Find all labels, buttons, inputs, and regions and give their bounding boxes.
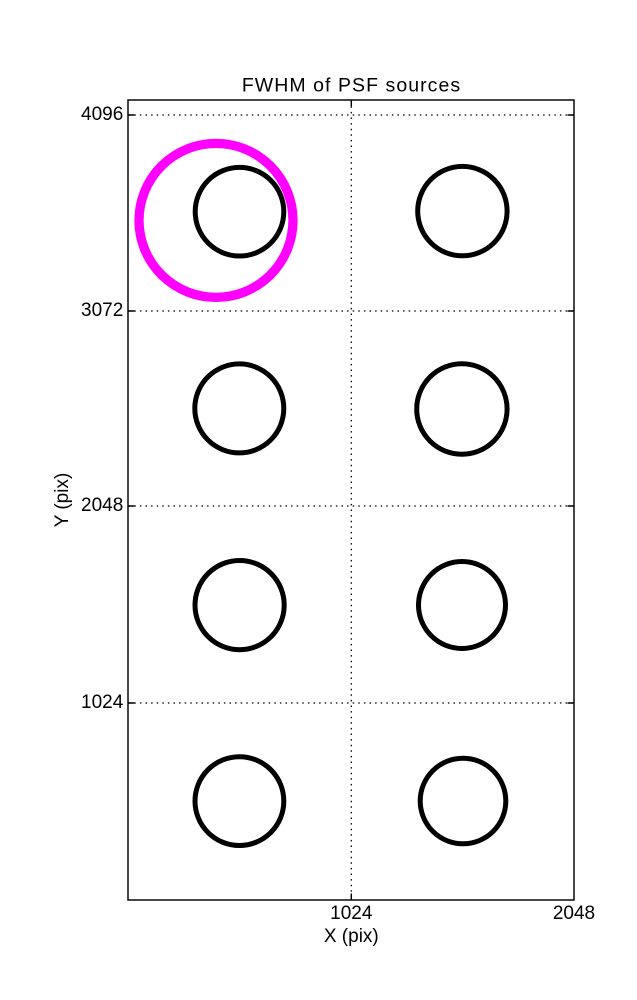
svg-text:Y (pix): Y (pix) <box>52 473 73 528</box>
svg-text:1024: 1024 <box>81 692 124 713</box>
svg-text:3072: 3072 <box>81 300 123 321</box>
svg-text:1024: 1024 <box>330 903 373 924</box>
svg-text:2048: 2048 <box>553 903 595 924</box>
svg-text:X (pix): X (pix) <box>324 926 379 947</box>
svg-text:4096: 4096 <box>81 104 123 125</box>
svg-text:2048: 2048 <box>81 495 123 516</box>
svg-text:FWHM of PSF sources: FWHM of PSF sources <box>242 75 461 97</box>
